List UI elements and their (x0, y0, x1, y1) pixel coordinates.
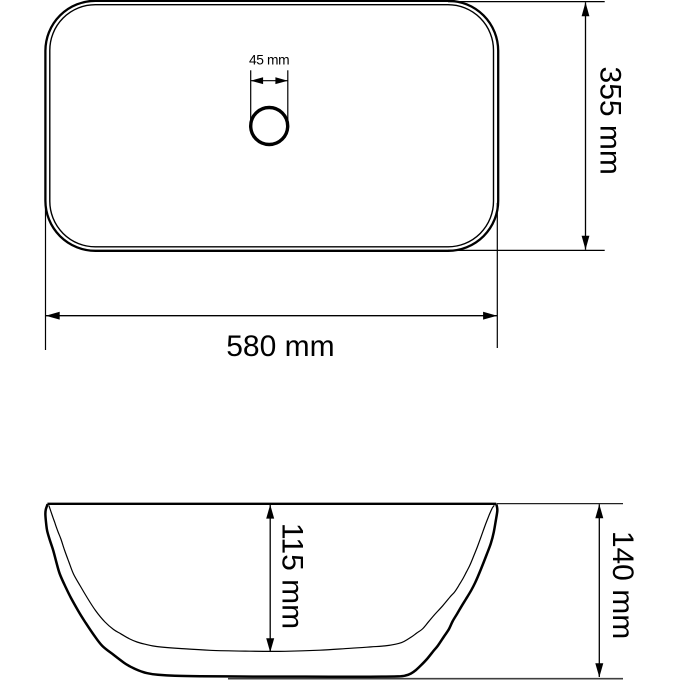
svg-text:140 mm: 140 mm (606, 531, 639, 639)
svg-text:355 mm: 355 mm (594, 67, 627, 175)
svg-text:45 mm: 45 mm (249, 52, 289, 67)
svg-text:115 mm: 115 mm (275, 523, 308, 629)
svg-text:580 mm: 580 mm (226, 330, 334, 363)
